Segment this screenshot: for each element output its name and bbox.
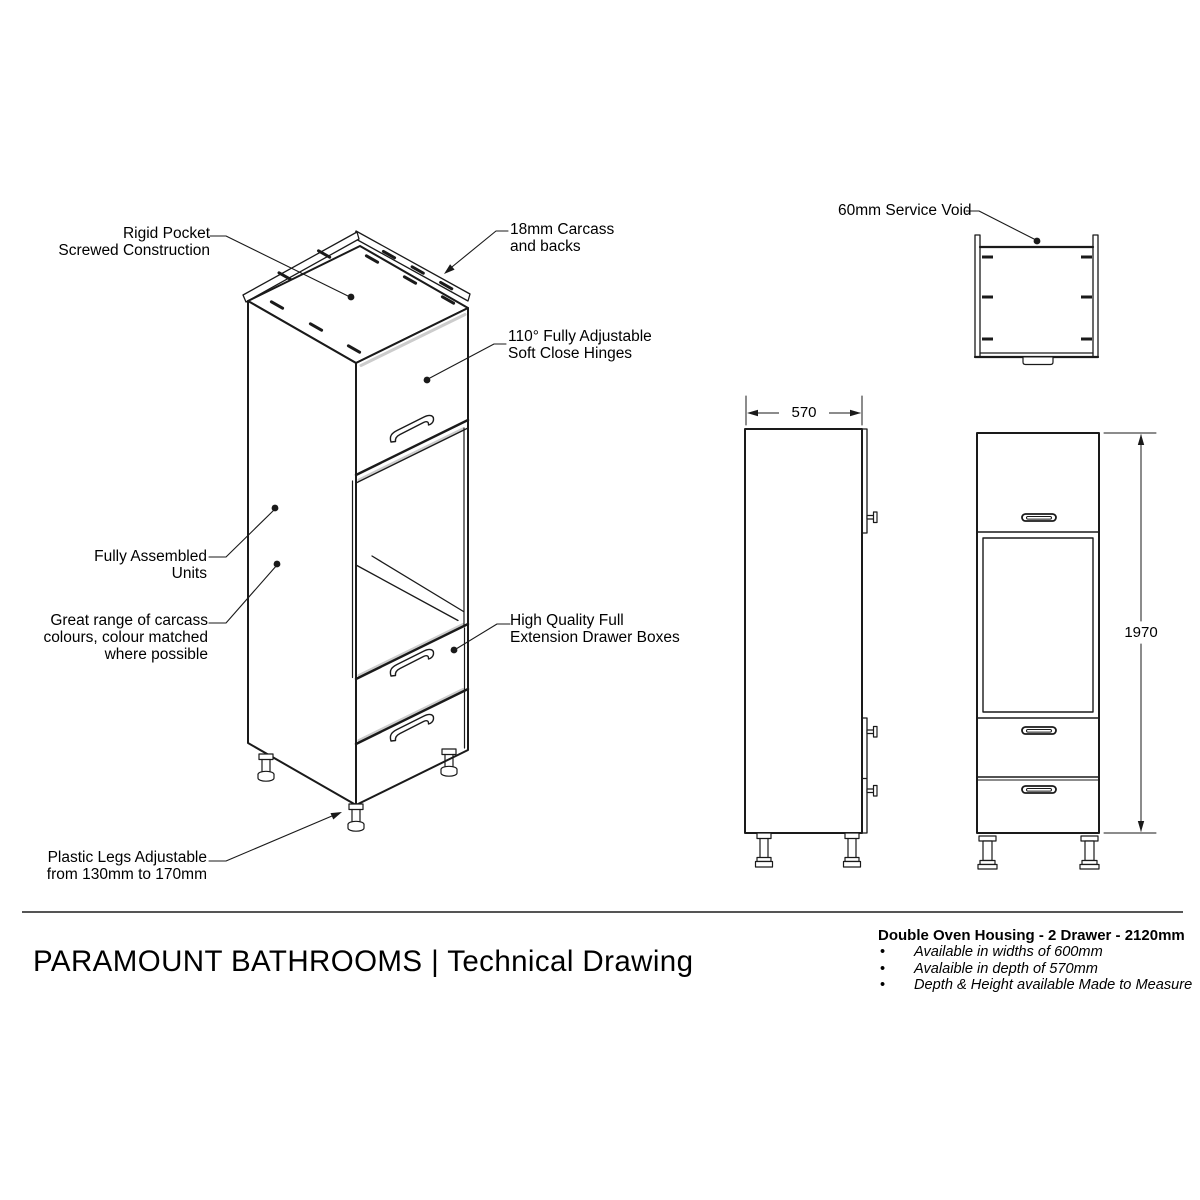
side-handles [867,512,877,796]
product-bullet-1-text: Available in widths of 600mm [914,944,1103,961]
annotation-plastic-legs: Plastic Legs Adjustable from 130mm to 17… [47,850,207,884]
dimension-label-height: 1970 [1115,624,1167,641]
plan-view [975,235,1098,365]
annotation-service-void: 60mm Service Void [838,203,972,220]
product-bullet-1: • Available in widths of 600mm [878,944,1200,961]
dimension-label-depth: 570 [779,404,829,421]
plan-right-panel [1093,235,1098,357]
leg-front-left [348,804,364,831]
separator-line [22,911,1183,913]
leg-back-left [258,754,274,781]
front-carcass [977,433,1099,833]
product-name: Double Oven Housing - 2 Drawer - 2120mm [878,927,1200,944]
bullet-icon: • [878,961,914,978]
plan-screw-marks [982,256,1092,341]
line-art [0,0,1200,1200]
side-view [745,396,877,867]
product-bullet-2-text: Avalaible in depth of 570mm [914,961,1098,978]
plan-foot-tab [1023,358,1053,365]
product-bullet-3: • Depth & Height available Made to Measu… [878,977,1200,994]
page-title: PARAMOUNT BATHROOMS | Technical Drawing [33,945,693,979]
bullet-icon: • [878,944,914,961]
plan-left-panel [975,235,980,357]
side-carcass [745,429,862,833]
side-panel [248,301,356,805]
front-legs [978,836,1099,869]
product-info: Double Oven Housing - 2 Drawer - 2120mm … [878,927,1200,994]
annotation-carcass-backs: 18mm Carcass and backs [510,222,614,256]
isometric-view [243,231,470,831]
annotation-rigid-pocket: Rigid Pocket Screwed Construction [58,226,210,260]
annotation-hinges: 110° Fully Adjustable Soft Close Hinges [508,329,652,363]
product-bullet-2: • Avalaible in depth of 570mm [878,961,1200,978]
annotation-carcass-colours: Great range of carcass colours, colour m… [43,613,208,663]
side-legs [756,833,861,867]
bullet-icon: • [878,977,914,994]
front-view [977,433,1156,869]
technical-drawing-page: Rigid Pocket Screwed Construction 18mm C… [0,0,1200,1200]
product-bullet-3-text: Depth & Height available Made to Measure [914,977,1192,994]
annotation-fully-assembled: Fully Assembled Units [94,549,207,583]
annotation-drawer-boxes: High Quality Full Extension Drawer Boxes [510,613,680,647]
